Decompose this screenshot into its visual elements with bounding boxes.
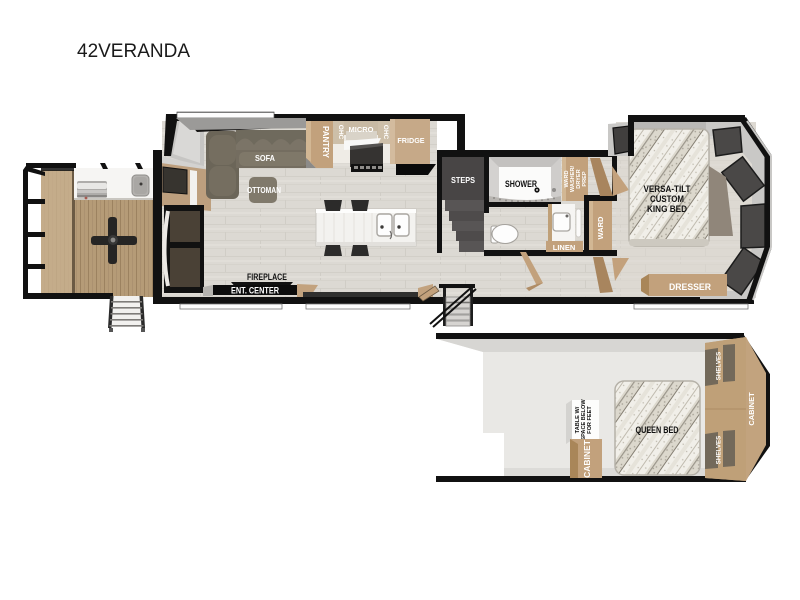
- svg-text:SHOWER: SHOWER: [505, 179, 537, 190]
- svg-text:CABINET: CABINET: [747, 392, 756, 426]
- svg-text:DRESSER: DRESSER: [669, 282, 711, 292]
- svg-text:LINEN: LINEN: [553, 243, 576, 252]
- svg-text:SHELVES: SHELVES: [716, 436, 723, 464]
- svg-text:VERSA-TILT: VERSA-TILT: [644, 184, 691, 194]
- svg-text:FOR FEET: FOR FEET: [587, 406, 593, 434]
- svg-text:42VERANDA: 42VERANDA: [77, 41, 190, 62]
- svg-text:CABINET: CABINET: [582, 439, 592, 478]
- svg-text:PANTRY: PANTRY: [321, 126, 330, 159]
- svg-text:SHELVES: SHELVES: [716, 352, 723, 380]
- svg-text:QUEEN BED: QUEEN BED: [636, 425, 679, 435]
- svg-text:PREP: PREP: [582, 171, 588, 187]
- svg-text:OHC: OHC: [337, 125, 344, 140]
- svg-text:MICRO: MICRO: [349, 125, 374, 134]
- svg-text:OHC: OHC: [382, 125, 389, 140]
- svg-text:SOFA: SOFA: [255, 153, 275, 163]
- svg-text:FRIDGE: FRIDGE: [397, 136, 424, 145]
- svg-text:CUSTOM: CUSTOM: [650, 194, 684, 204]
- svg-text:STEPS: STEPS: [451, 175, 475, 185]
- svg-text:WARD: WARD: [596, 216, 605, 239]
- svg-text:ENT. CENTER: ENT. CENTER: [231, 286, 279, 296]
- svg-text:FIREPLACE: FIREPLACE: [247, 272, 287, 282]
- svg-text:KING BED: KING BED: [647, 204, 687, 214]
- svg-text:OTTOMAN: OTTOMAN: [247, 185, 281, 195]
